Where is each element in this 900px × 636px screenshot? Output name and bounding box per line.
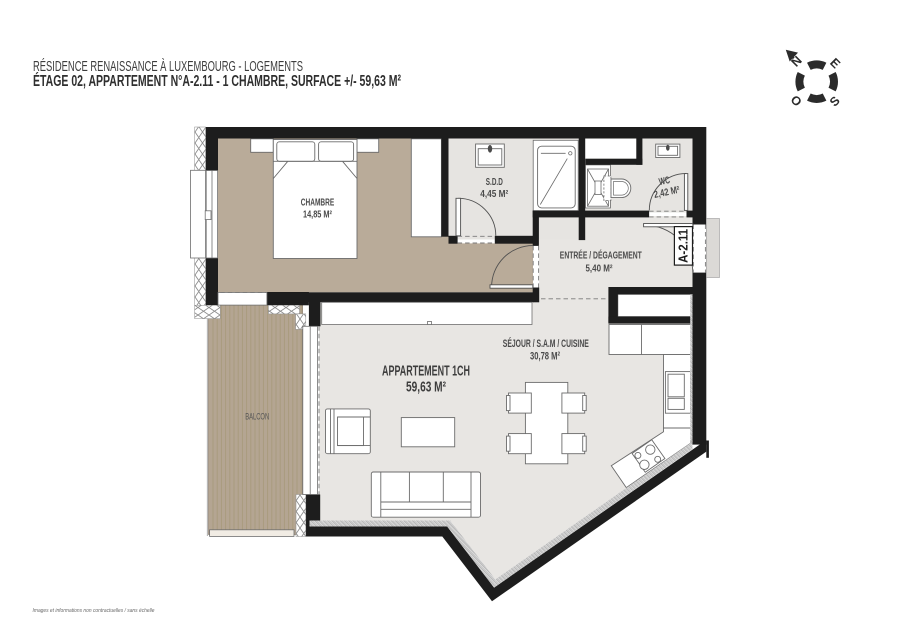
svg-text:Images et informations non con: Images et informations non contractuelle… [33, 608, 156, 614]
svg-text:A-2.11: A-2.11 [676, 229, 691, 263]
svg-text:4,45 M²: 4,45 M² [480, 189, 509, 200]
svg-text:APPARTEMENT 1CH: APPARTEMENT 1CH [382, 364, 470, 380]
svg-text:59,63 M²: 59,63 M² [406, 380, 446, 396]
svg-text:5,40 M²: 5,40 M² [586, 263, 613, 275]
svg-text:SÉJOUR / S.A.M / CUISINE: SÉJOUR / S.A.M / CUISINE [503, 337, 589, 350]
svg-text:CHAMBRE: CHAMBRE [301, 198, 335, 209]
svg-text:BALCON: BALCON [245, 412, 269, 422]
svg-text:14,85 M²: 14,85 M² [303, 210, 332, 221]
svg-text:ENTRÉE / DÉGAGEMENT: ENTRÉE / DÉGAGEMENT [560, 249, 642, 262]
svg-text:ÉTAGE 02, APPARTEMENT N°A-2.11: ÉTAGE 02, APPARTEMENT N°A-2.11 - 1 CHAMB… [33, 71, 401, 90]
svg-text:S.D.D: S.D.D [486, 177, 503, 188]
svg-text:30,78 M²: 30,78 M² [530, 351, 560, 363]
